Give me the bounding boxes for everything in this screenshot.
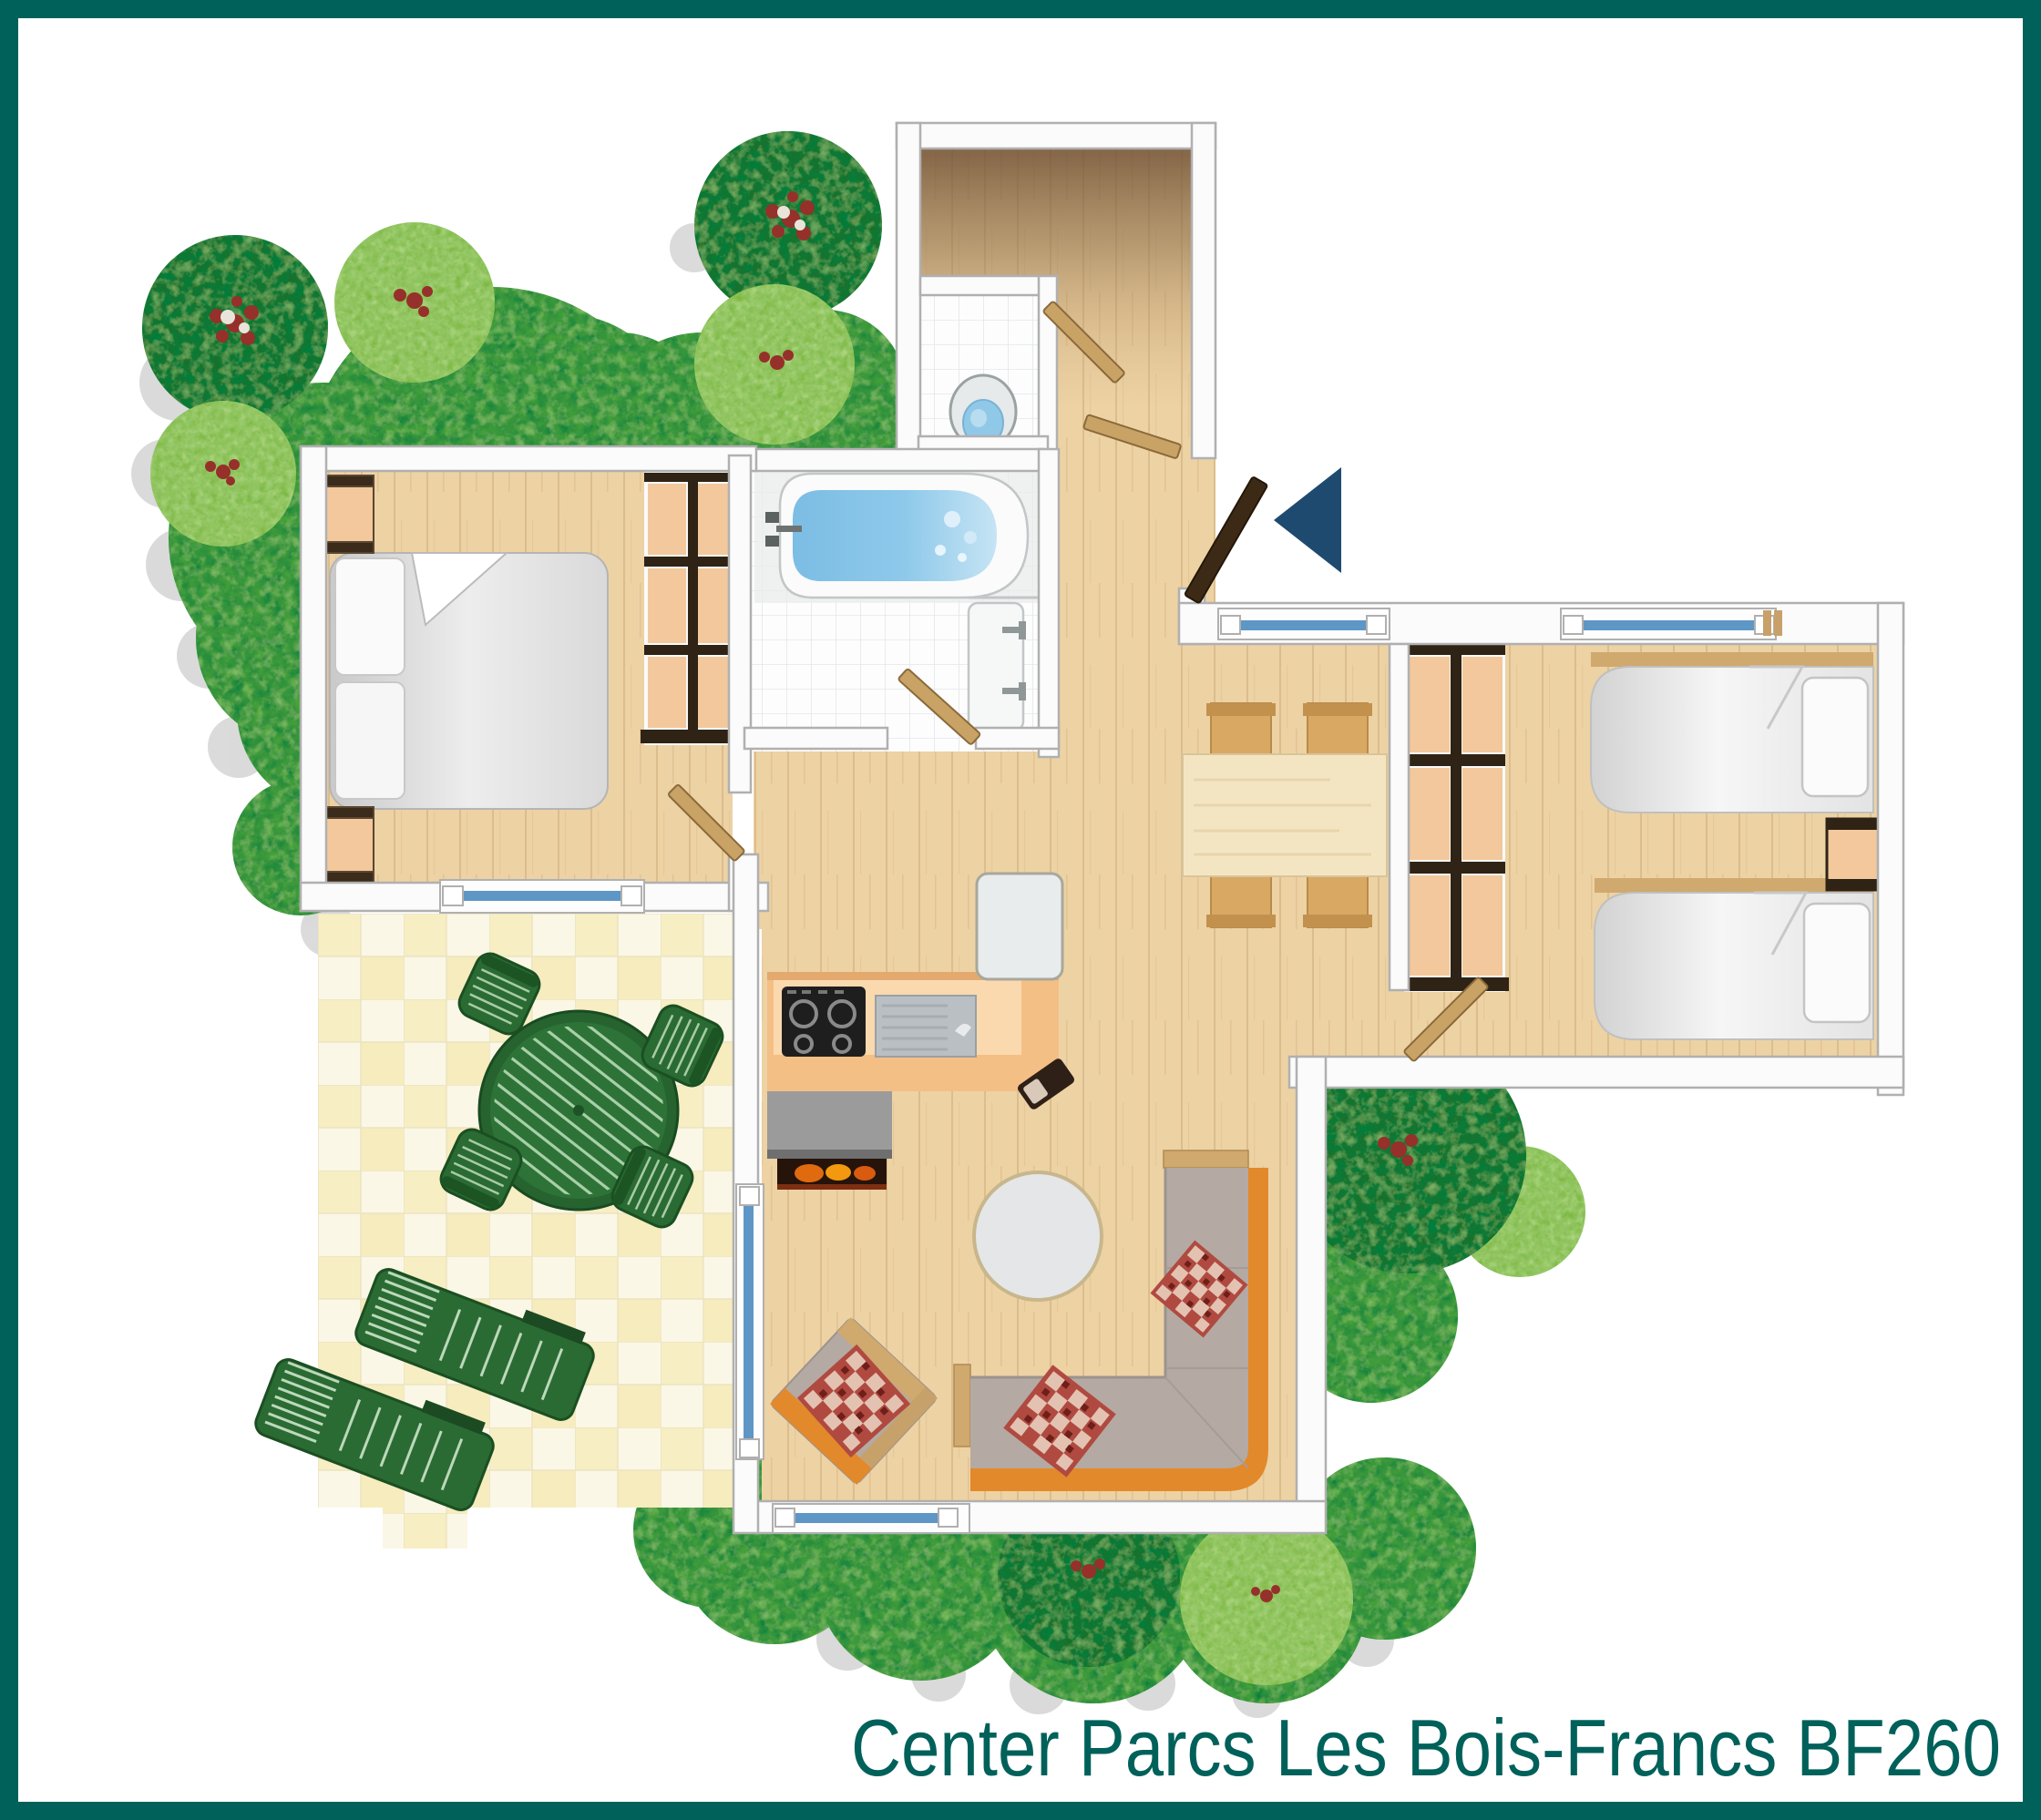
svg-text:Center Parcs Les Bois-Francs B: Center Parcs Les Bois-Francs BF260 bbox=[851, 1702, 2001, 1793]
